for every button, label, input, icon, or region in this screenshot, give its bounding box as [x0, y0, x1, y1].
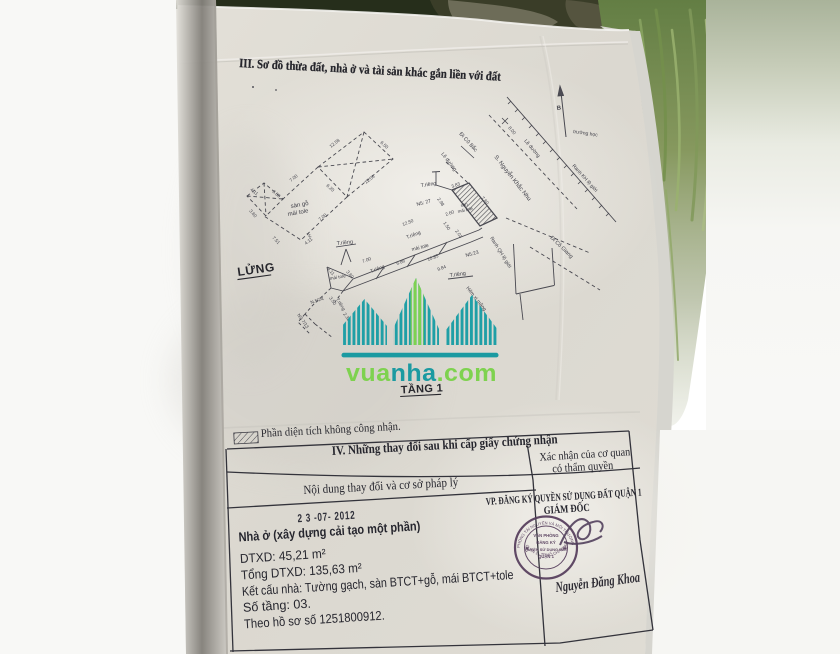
svg-text:VĂN PHÒNG: VĂN PHÒNG — [533, 533, 558, 538]
svg-text:ĐĂNG KÝ: ĐĂNG KÝ — [536, 540, 556, 545]
